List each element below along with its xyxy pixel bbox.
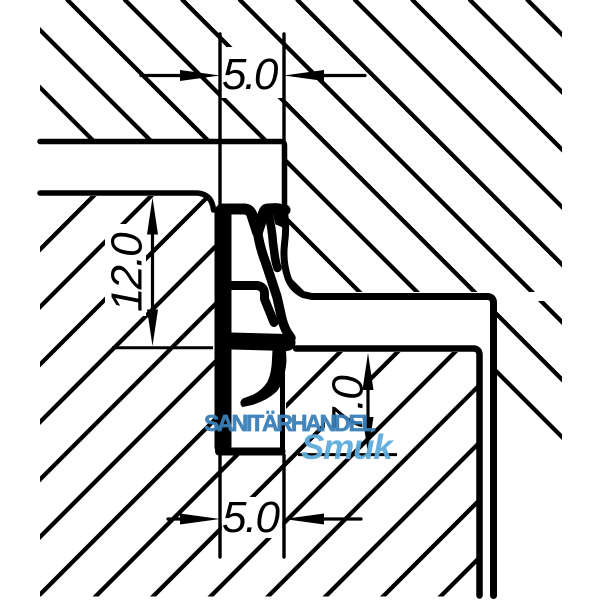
svg-text:Smuk: Smuk (301, 428, 394, 467)
svg-text:5.0: 5.0 (222, 493, 280, 542)
svg-text:5.0: 5.0 (222, 50, 279, 99)
svg-text:12.0: 12.0 (103, 232, 152, 312)
